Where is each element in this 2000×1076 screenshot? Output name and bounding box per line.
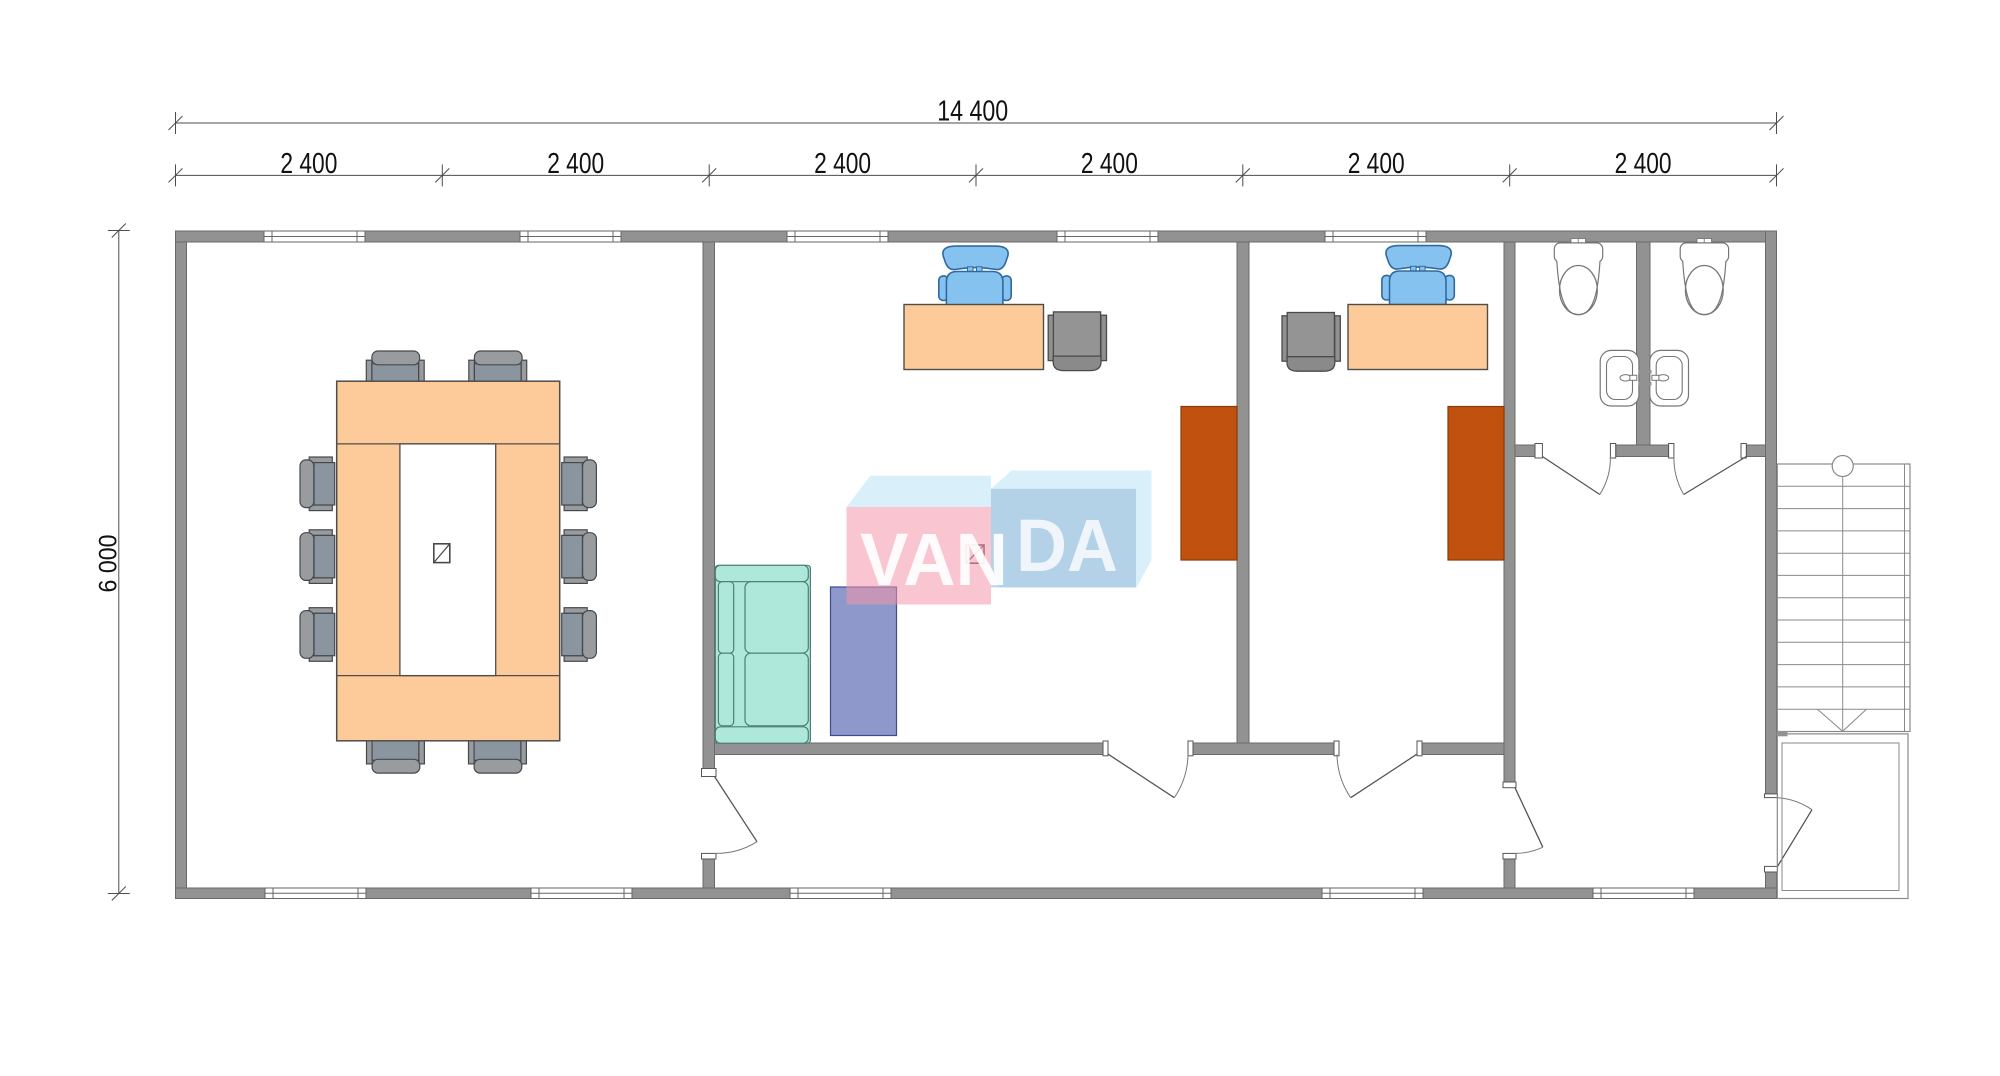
svg-text:DA: DA — [1016, 504, 1118, 587]
svg-text:VAN: VAN — [860, 518, 1008, 601]
svg-text:14 400: 14 400 — [937, 96, 1008, 128]
svg-text:2 400: 2 400 — [814, 148, 871, 180]
svg-text:2 400: 2 400 — [1615, 148, 1672, 180]
svg-text:2 400: 2 400 — [1348, 148, 1405, 180]
svg-text:2 400: 2 400 — [547, 148, 604, 180]
svg-text:6 000: 6 000 — [95, 535, 123, 593]
svg-text:2 400: 2 400 — [1081, 148, 1138, 180]
svg-text:2 400: 2 400 — [280, 148, 337, 180]
